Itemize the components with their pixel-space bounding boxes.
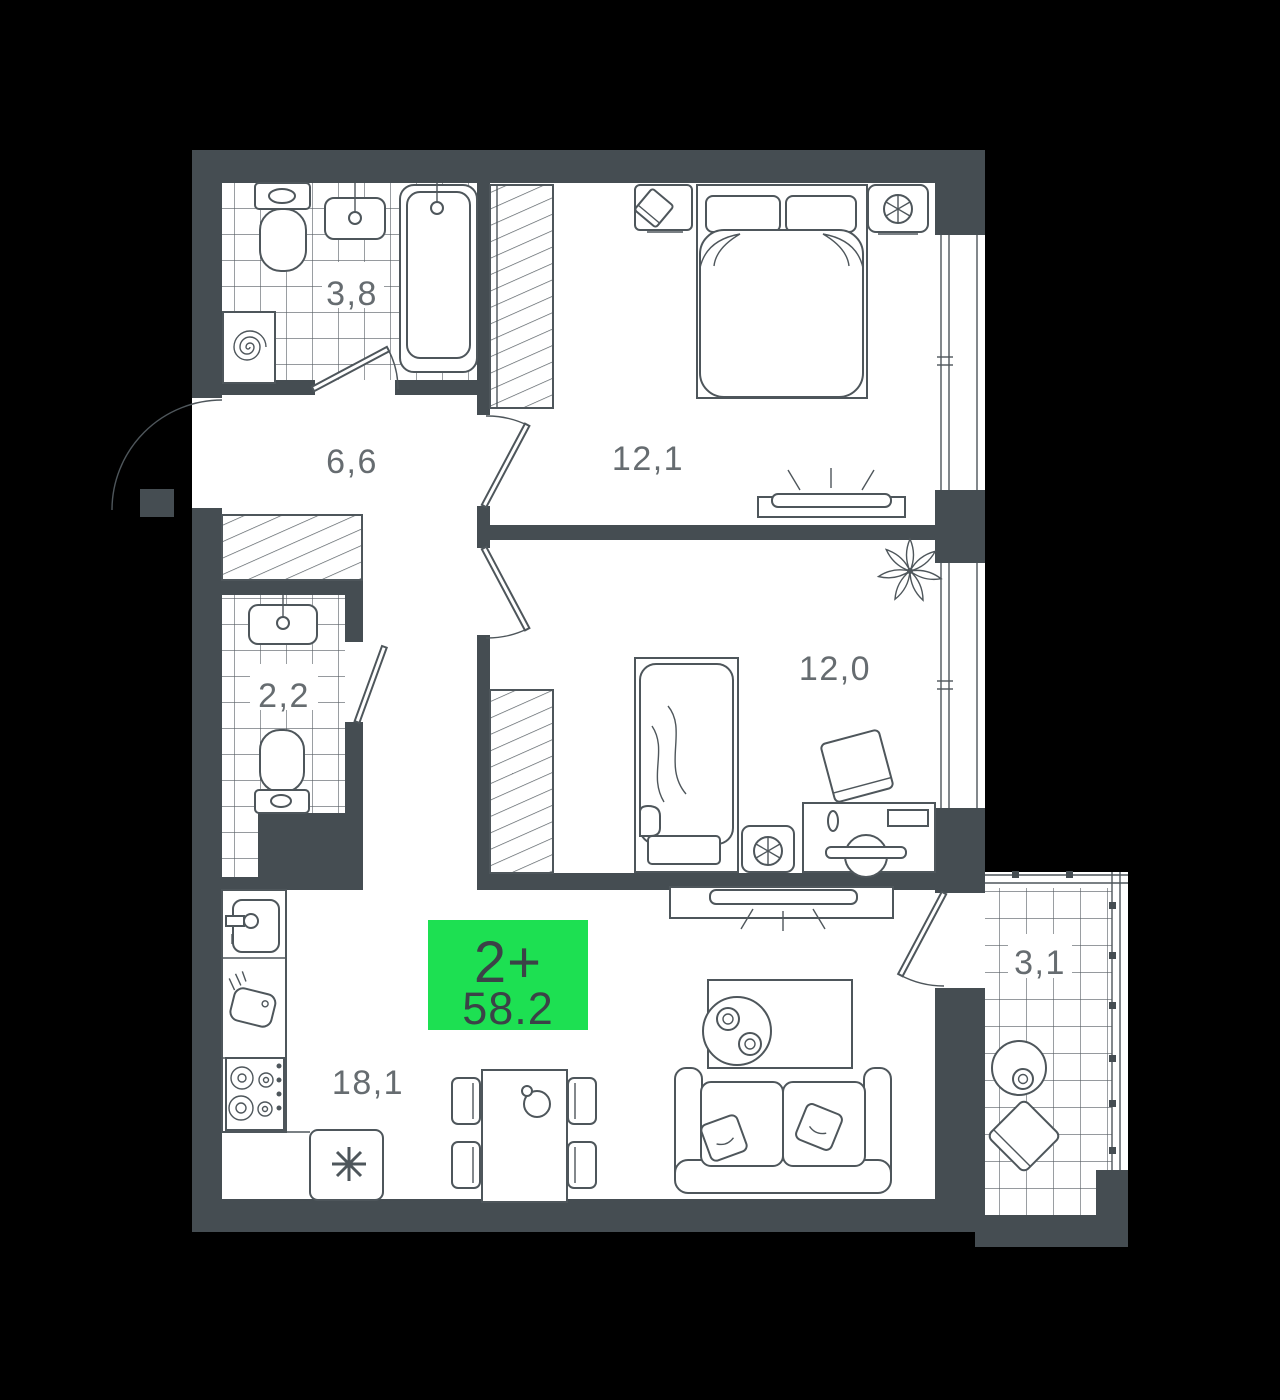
kitchen-sink-icon	[226, 900, 279, 952]
dining-chair-icon	[452, 1142, 480, 1188]
window-bedroom-2	[935, 563, 985, 808]
entrance-opening	[192, 398, 222, 508]
badge-area-value: 58.2	[462, 983, 554, 1034]
bedroom-1-area-label: 12,1	[612, 440, 684, 478]
double-bed-icon	[697, 185, 867, 398]
dining-chair-icon	[568, 1078, 596, 1124]
balcony-area-label: 3,1	[1014, 944, 1066, 982]
bathroom-area-label: 3,8	[326, 275, 378, 313]
dining-chair-icon	[452, 1078, 480, 1124]
toilet-icon	[255, 183, 310, 271]
dining-chair-icon	[568, 1142, 596, 1188]
pillow-icon	[786, 196, 856, 232]
floor-plan: 3,8 6,6	[0, 0, 1280, 1400]
hallway-area-label: 6,6	[326, 443, 378, 481]
balcony-door-opening	[935, 893, 985, 988]
apartment-badge: 2+ 58.2	[428, 920, 588, 1034]
pillow-icon	[640, 806, 660, 836]
washing-machine-icon	[223, 312, 275, 383]
hall-kitchen-passage	[363, 877, 477, 890]
toilet-area-label: 2,2	[258, 677, 310, 715]
vent-unit-icon	[868, 185, 928, 234]
stove-icon	[226, 1058, 284, 1130]
ac-unit-icon	[742, 826, 794, 872]
coffee-table-icon	[703, 980, 852, 1068]
snowflake-icon	[332, 1147, 366, 1181]
kitchen-area-label: 18,1	[332, 1064, 404, 1102]
desk-icon	[803, 803, 935, 877]
pillow-icon	[706, 196, 780, 232]
toilet-icon	[255, 730, 309, 813]
hallway-wardrobe-icon	[222, 515, 362, 580]
bedroom-2-area-label: 12,0	[799, 650, 871, 688]
bathtub-icon	[400, 183, 477, 372]
tray-icon	[703, 997, 771, 1065]
cup-icon	[1013, 1069, 1033, 1089]
nightstand-icon	[634, 185, 692, 232]
single-bed-icon	[635, 658, 738, 872]
bedroom-1-wardrobe-icon	[490, 185, 553, 408]
window-bedroom-1	[935, 235, 985, 490]
bedroom-2-wardrobe-icon	[490, 690, 553, 873]
